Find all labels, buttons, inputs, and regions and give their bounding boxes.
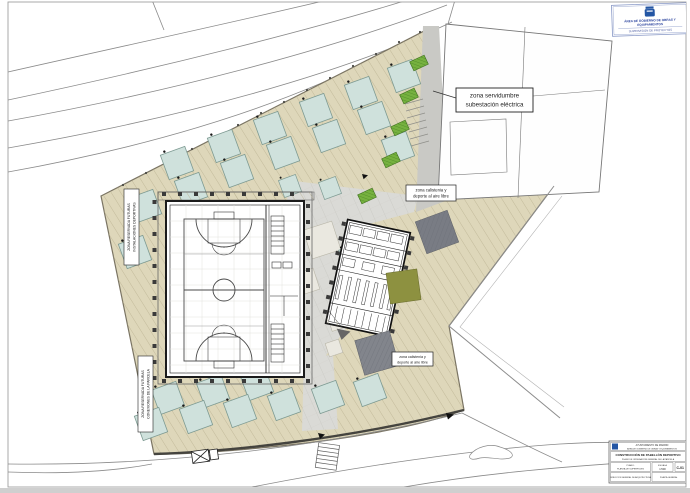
calistenia-bottom-line2: deporte al aire libre (397, 361, 428, 365)
madrid-shield-icon (645, 6, 655, 16)
title-block: AYUNTAMIENTO DE MADRID ÁREA DE GOBIERNO … (609, 441, 687, 483)
reserve-left-line2: INSTALACIONES DEPORTIVAS (133, 202, 137, 252)
calistenia-top-line1: zona calistenia y (416, 188, 448, 193)
servidumbre-label-line2: subestación eléctrica (466, 102, 524, 109)
callout-reserve-bottom: ZONA RESERVADA FUTURAS CONEXIONES DE LA … (138, 356, 153, 432)
sports-hall (166, 201, 304, 377)
title-block-subtitle: PLANO DE ORDENACIÓN GENERAL DE LA PARCEL… (622, 458, 675, 461)
reserve-left-line1: ZONA RESERVADA FUTURAS (127, 202, 131, 250)
title-block-scale-label: ESCALA (658, 464, 667, 467)
calistenia-top-line2: deporte al aire libre (413, 194, 450, 199)
title-block-org1: AYUNTAMIENTO DE MADRID (636, 444, 669, 447)
callout-calistenia-top: zona calistenia y deporte al aire libre (406, 185, 456, 201)
title-block-sheet-code: C-01 (677, 466, 684, 470)
title-block-plan-name: PLANTA DE SUPERFICIES (617, 468, 645, 471)
sheet-bottom-margin (0, 488, 690, 493)
site-plan-sheet: zona servidumbre subestación eléctrica z… (0, 0, 690, 493)
title-block-bottom-left: DIRECCIÓN GENERAL DE ARQUITECTURA (610, 476, 651, 479)
callout-calistenia-bottom: zona calistenia y deporte al aire libre (392, 352, 433, 366)
city-logo-icon (612, 444, 618, 450)
title-block-scale-value: 1:500 (659, 467, 666, 471)
site-plan-drawing: zona servidumbre subestación eléctrica z… (0, 0, 690, 493)
reserve-bottom-line2: CONEXIONES DE LA PARCELA (147, 368, 151, 418)
title-block-plan-label: PLANO: (626, 464, 634, 467)
title-block-bottom-right: PLANTA GENERAL (660, 476, 679, 479)
title-block-project: CONSTRUCCIÓN DE PABELLÓN DEPORTIVO (615, 452, 681, 457)
title-block-org2: ÁREA DE GOBIERNO DE OBRAS Y EQUIPAMIENTO… (627, 447, 677, 450)
olive-sports-pad (386, 269, 421, 304)
reserve-bottom-line1: ZONA RESERVADA FUTURAS (141, 369, 145, 417)
servidumbre-label-line1: zona servidumbre (470, 93, 520, 100)
approval-stamp: ÁREA DE GOBIERNO DE OBRAS Y EQUIPAMIENTO… (611, 3, 688, 37)
callout-reserve-left: ZONA RESERVADA FUTURAS INSTALACIONES DEP… (124, 189, 139, 265)
calistenia-bottom-line1: zona calistenia y (399, 355, 426, 359)
